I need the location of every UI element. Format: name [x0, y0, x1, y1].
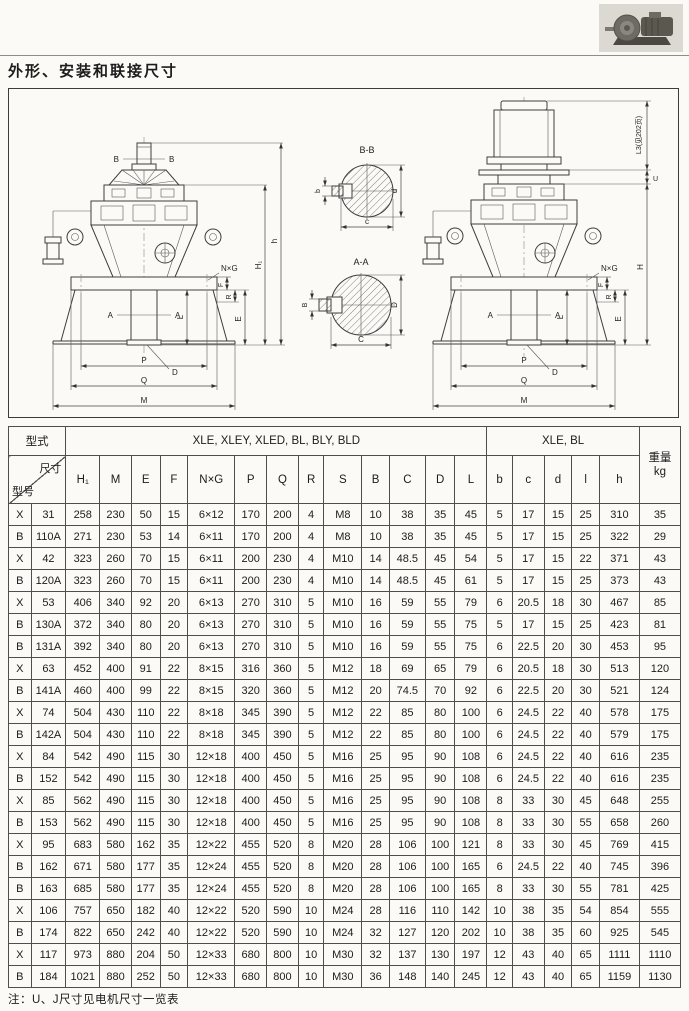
cell-value: 20 [544, 680, 572, 702]
cell-value: 371 [599, 548, 639, 570]
cell-series: X [9, 746, 32, 768]
cell-value: 22 [572, 548, 600, 570]
cell-value: 16 [362, 592, 390, 614]
cell-value: M10 [324, 636, 362, 658]
cell-value: 20 [160, 614, 188, 636]
weight-unit: kg [654, 466, 666, 478]
cell-value: 70 [425, 680, 455, 702]
cell-model: 153 [31, 812, 66, 834]
cell-value: 6×11 [188, 526, 235, 548]
table-row: B1636855801773512×244555208M202810610016… [9, 878, 681, 900]
cell-series: B [9, 570, 32, 592]
cell-value: 580 [100, 878, 132, 900]
column-header: C [389, 456, 425, 504]
table-row: B18410218802525012×3368080010M3036148140… [9, 966, 681, 988]
table-row: B141A46040099228×153203605M122074.570926… [9, 680, 681, 702]
cell-value: 400 [100, 680, 132, 702]
cell-value: 235 [639, 746, 680, 768]
cell-value: 460 [66, 680, 100, 702]
cell-value: 120 [639, 658, 680, 680]
cell-series: X [9, 944, 32, 966]
cell-model: 174 [31, 922, 66, 944]
cell-value: 55 [425, 614, 455, 636]
cell-value: 75 [455, 614, 487, 636]
cell-value: 230 [267, 570, 299, 592]
column-header: b [487, 456, 513, 504]
model-type-header: 型式 [9, 427, 66, 456]
dim-label-H: H [636, 264, 645, 270]
cell-value: 310 [267, 636, 299, 658]
cell-value: 12 [487, 966, 513, 988]
dim-label-D-section: D [390, 302, 399, 308]
dim-label-d: d [390, 189, 399, 193]
cell-model: 63 [31, 658, 66, 680]
column-header: L [455, 456, 487, 504]
cell-value: 5 [298, 790, 324, 812]
cell-value: 5 [487, 548, 513, 570]
cell-value: 800 [267, 966, 299, 988]
cell-value: 14 [160, 526, 188, 548]
cell-value: 85 [639, 592, 680, 614]
cell-value: 467 [599, 592, 639, 614]
cell-value: 680 [235, 966, 267, 988]
cell-value: 48.5 [389, 570, 425, 592]
cell-value: 25 [362, 746, 390, 768]
series-group2-header: XLE, BL [487, 427, 640, 456]
cell-value: 32 [362, 922, 390, 944]
cell-value: 520 [235, 900, 267, 922]
cell-value: 12×24 [188, 856, 235, 878]
cell-value: 25 [572, 570, 600, 592]
cell-value: 65 [572, 944, 600, 966]
cell-value: 430 [100, 702, 132, 724]
cell-value: 15 [544, 504, 572, 526]
corner-label-dimension: 尺寸 [39, 460, 61, 476]
cell-value: 200 [267, 504, 299, 526]
cell-value: 70 [131, 570, 160, 592]
cell-value: 28 [362, 834, 390, 856]
cell-value: 100 [425, 878, 455, 900]
cell-value: 200 [235, 548, 267, 570]
cell-value: 680 [235, 944, 267, 966]
cell-value: 95 [389, 768, 425, 790]
cell-value: 25 [572, 504, 600, 526]
cell-series: B [9, 966, 32, 988]
cell-value: M16 [324, 812, 362, 834]
cell-value: 124 [639, 680, 680, 702]
cell-value: 562 [66, 812, 100, 834]
cell-value: 40 [160, 900, 188, 922]
cell-model: 120A [31, 570, 66, 592]
cell-series: X [9, 702, 32, 724]
cell-value: 345 [235, 724, 267, 746]
cell-value: 100 [425, 834, 455, 856]
cell-value: 50 [160, 966, 188, 988]
cell-value: 8 [487, 812, 513, 834]
cell-value: 12×24 [188, 878, 235, 900]
table-row: X5340634092206×132703105M1016595579620.5… [9, 592, 681, 614]
cell-value: 430 [100, 724, 132, 746]
cell-series: X [9, 658, 32, 680]
cell-value: 40 [572, 746, 600, 768]
cell-value: 648 [599, 790, 639, 812]
cell-value: 5 [298, 746, 324, 768]
cell-value: 230 [100, 504, 132, 526]
section-cut-label-b: B [114, 155, 119, 164]
cell-value: 90 [425, 812, 455, 834]
series-group1-header: XLE, XLEY, XLED, BL, BLY, BLD [66, 427, 487, 456]
cell-value: M12 [324, 658, 362, 680]
cell-value: 10 [487, 900, 513, 922]
cell-value: 14 [362, 570, 390, 592]
cell-value: 683 [66, 834, 100, 856]
cell-value: 24.5 [512, 702, 544, 724]
cell-value: 177 [131, 878, 160, 900]
dim-label-P: P [141, 356, 146, 365]
cell-value: 17 [512, 504, 544, 526]
cell-value: 38 [512, 922, 544, 944]
cell-value: 406 [66, 592, 100, 614]
cell-value: M16 [324, 768, 362, 790]
cell-series: B [9, 812, 32, 834]
column-header: H₁ [66, 456, 100, 504]
cell-value: 22 [160, 658, 188, 680]
cell-value: 15 [544, 548, 572, 570]
cell-value: 5 [298, 724, 324, 746]
cell-value: 74.5 [389, 680, 425, 702]
cell-value: 12×33 [188, 966, 235, 988]
dim-label-P: P [521, 356, 526, 365]
table-row: B142A504430110228×183453905M122285801006… [9, 724, 681, 746]
cell-value: 33 [512, 812, 544, 834]
cell-value: 5 [298, 658, 324, 680]
cell-model: 184 [31, 966, 66, 988]
cell-value: 400 [235, 812, 267, 834]
cell-value: 5 [298, 636, 324, 658]
dim-label-E: E [614, 316, 623, 321]
cell-value: 1130 [639, 966, 680, 988]
cell-value: M24 [324, 900, 362, 922]
dim-label-M: M [521, 396, 528, 405]
cell-value: 5 [487, 526, 513, 548]
dim-label-D: D [552, 368, 558, 377]
cell-value: 29 [639, 526, 680, 548]
section-view-bb: B-B b d c [315, 145, 405, 231]
cell-value: 18 [544, 592, 572, 614]
cell-value: M8 [324, 504, 362, 526]
cell-model: 31 [31, 504, 66, 526]
cell-value: 22 [362, 702, 390, 724]
cell-value: 81 [639, 614, 680, 636]
cell-value: 116 [389, 900, 425, 922]
cell-value: 90 [425, 790, 455, 812]
cell-value: 22 [544, 746, 572, 768]
cell-value: 854 [599, 900, 639, 922]
cell-value: 17 [512, 614, 544, 636]
cell-value: 453 [599, 636, 639, 658]
cell-value: 106 [389, 878, 425, 900]
cell-value: 22.5 [512, 636, 544, 658]
cell-value: 80 [425, 724, 455, 746]
cell-value: 8 [487, 790, 513, 812]
cell-value: 80 [131, 614, 160, 636]
table-row: B131A39234080206×132703105M1016595575622… [9, 636, 681, 658]
cell-model: 95 [31, 834, 66, 856]
cell-value: 242 [131, 922, 160, 944]
corner-label-model: 型号 [12, 483, 34, 499]
section-cut-label-a: A [108, 311, 114, 320]
cell-value: 6×13 [188, 636, 235, 658]
cell-value: 12×22 [188, 834, 235, 856]
cell-value: M24 [324, 922, 362, 944]
cell-value: 18 [362, 658, 390, 680]
cell-value: 35 [160, 834, 188, 856]
dim-label-H1: H₁ [254, 260, 263, 269]
table-row: B1525424901153012×184004505M162595901086… [9, 768, 681, 790]
cell-value: 106 [389, 856, 425, 878]
cell-value: 20 [544, 636, 572, 658]
cell-value: 520 [267, 878, 299, 900]
cell-value: 271 [66, 526, 100, 548]
cell-value: 40 [160, 922, 188, 944]
dim-label-NxG: N×G [601, 264, 618, 273]
cell-value: 40 [544, 966, 572, 988]
cell-value: 400 [235, 790, 267, 812]
cell-value: 35 [544, 900, 572, 922]
cell-value: 880 [100, 944, 132, 966]
cell-value: 392 [66, 636, 100, 658]
cell-value: 880 [100, 966, 132, 988]
cell-value: 8×15 [188, 680, 235, 702]
cell-value: 55 [425, 592, 455, 614]
cell-value: 17 [512, 548, 544, 570]
cell-series: B [9, 768, 32, 790]
cell-value: 10 [487, 922, 513, 944]
table-row: B120A32326070156×112002304M101448.545615… [9, 570, 681, 592]
column-header: D [425, 456, 455, 504]
cell-value: 580 [100, 856, 132, 878]
cell-value: 33 [512, 878, 544, 900]
dim-label-h: h [270, 239, 279, 243]
cell-value: 340 [100, 614, 132, 636]
cell-value: 260 [639, 812, 680, 834]
cell-value: 33 [512, 790, 544, 812]
right-reducer-motor-view: A A L D N×G F R E [423, 97, 658, 410]
cell-value: 1111 [599, 944, 639, 966]
cell-value: 30 [544, 812, 572, 834]
cell-value: 230 [100, 526, 132, 548]
cell-value: 15 [544, 614, 572, 636]
cell-value: 24.5 [512, 768, 544, 790]
cell-value: 452 [66, 658, 100, 680]
cell-value: 110 [425, 900, 455, 922]
cell-value: 423 [599, 614, 639, 636]
cell-value: 616 [599, 746, 639, 768]
cell-value: 1159 [599, 966, 639, 988]
cell-value: 5 [298, 680, 324, 702]
dim-label-B: B [302, 302, 309, 307]
cell-value: 30 [544, 834, 572, 856]
dim-label-E: E [234, 316, 243, 321]
dim-label-Q: Q [521, 376, 527, 385]
cell-value: 95 [389, 790, 425, 812]
cell-value: 562 [66, 790, 100, 812]
cell-value: 28 [362, 856, 390, 878]
cell-value: 20 [362, 680, 390, 702]
cell-value: 12 [487, 944, 513, 966]
cell-value: 22 [362, 724, 390, 746]
cell-value: 137 [389, 944, 425, 966]
table-row: B130A37234080206×132703105M1016595575517… [9, 614, 681, 636]
cell-value: 45 [455, 526, 487, 548]
cell-value: 322 [599, 526, 639, 548]
cell-value: 6 [487, 592, 513, 614]
cell-value: 323 [66, 548, 100, 570]
cell-value: 90 [425, 768, 455, 790]
cell-value: 10 [362, 504, 390, 526]
cell-value: 542 [66, 746, 100, 768]
cell-value: 30 [160, 812, 188, 834]
column-header: S [324, 456, 362, 504]
cell-value: 6 [487, 680, 513, 702]
column-header: N×G [188, 456, 235, 504]
cell-value: 45 [572, 790, 600, 812]
cell-value: 6 [487, 856, 513, 878]
cell-value: 36 [362, 966, 390, 988]
cell-value: 30 [572, 658, 600, 680]
cell-value: 415 [639, 834, 680, 856]
cell-model: 130A [31, 614, 66, 636]
catalog-page: 外形、安装和联接尺寸 B B [0, 0, 689, 1011]
footnote: 注：U、J尺寸见电机尺寸一览表 [8, 991, 179, 1007]
cell-value: 4 [298, 548, 324, 570]
cell-value: M30 [324, 944, 362, 966]
cell-value: 10 [298, 944, 324, 966]
cell-value: 17 [512, 526, 544, 548]
cell-value: 252 [131, 966, 160, 988]
cell-value: 162 [131, 834, 160, 856]
cell-value: 106 [389, 834, 425, 856]
cell-value: 170 [235, 504, 267, 526]
cell-value: 115 [131, 790, 160, 812]
cell-value: 258 [66, 504, 100, 526]
cell-value: 520 [235, 922, 267, 944]
cell-value: 8×15 [188, 658, 235, 680]
cell-value: 822 [66, 922, 100, 944]
cell-value: 61 [455, 570, 487, 592]
cell-value: 43 [512, 944, 544, 966]
cell-value: 513 [599, 658, 639, 680]
cell-value: 542 [66, 768, 100, 790]
cell-value: 110 [131, 724, 160, 746]
cell-value: 230 [267, 548, 299, 570]
table-row: X3125823050156×121702004M810383545517152… [9, 504, 681, 526]
cell-value: 6×11 [188, 570, 235, 592]
cell-value: 95 [389, 812, 425, 834]
cell-value: 400 [100, 658, 132, 680]
dim-label-c: c [365, 217, 369, 226]
dim-label-L3: L3(见202页) [635, 116, 643, 154]
cell-series: X [9, 592, 32, 614]
cell-value: 12×33 [188, 944, 235, 966]
cell-value: 6×11 [188, 548, 235, 570]
cell-value: 5 [298, 702, 324, 724]
dim-label-L: L [176, 314, 185, 319]
dim-label-F: F [218, 283, 225, 287]
cell-value: 1021 [66, 966, 100, 988]
cell-value: M10 [324, 570, 362, 592]
cell-value: 450 [267, 790, 299, 812]
cell-value: 616 [599, 768, 639, 790]
cell-value: 390 [267, 724, 299, 746]
cell-value: 30 [544, 878, 572, 900]
table-row: X1179738802045012×3368080010M30321371301… [9, 944, 681, 966]
cell-value: 130 [425, 944, 455, 966]
cell-value: 54 [572, 900, 600, 922]
cell-value: 24.5 [512, 724, 544, 746]
cell-value: 25 [362, 768, 390, 790]
cell-value: 25 [572, 526, 600, 548]
cell-value: 40 [572, 724, 600, 746]
title-rule [0, 55, 689, 56]
cell-value: 6 [487, 768, 513, 790]
weight-label: 重量 [648, 452, 671, 464]
cell-value: 5 [298, 592, 324, 614]
column-header: l [572, 456, 600, 504]
cell-value: 30 [160, 790, 188, 812]
cell-value: 15 [160, 570, 188, 592]
cell-value: 65 [572, 966, 600, 988]
cell-value: 5 [487, 570, 513, 592]
cell-value: 521 [599, 680, 639, 702]
cell-value: 35 [425, 526, 455, 548]
cell-value: 8 [487, 834, 513, 856]
corner-cell: 尺寸 型号 [9, 456, 66, 504]
cell-value: 40 [572, 702, 600, 724]
cell-value: 310 [599, 504, 639, 526]
cell-value: 6 [487, 746, 513, 768]
section-title-aa: A-A [353, 257, 368, 267]
cell-value: 769 [599, 834, 639, 856]
cell-value: 490 [100, 790, 132, 812]
cell-value: 323 [66, 570, 100, 592]
cell-value: 6 [487, 702, 513, 724]
cell-value: 25 [362, 790, 390, 812]
cell-value: 45 [425, 548, 455, 570]
cell-value: 390 [267, 702, 299, 724]
cell-value: 270 [235, 614, 267, 636]
cell-value: 100 [425, 856, 455, 878]
cell-value: 12×18 [188, 812, 235, 834]
cell-value: 5 [487, 614, 513, 636]
cell-value: 60 [572, 922, 600, 944]
cell-value: M20 [324, 878, 362, 900]
cell-value: 490 [100, 812, 132, 834]
cell-value: 175 [639, 724, 680, 746]
cell-value: 75 [455, 636, 487, 658]
cell-model: 141A [31, 680, 66, 702]
dim-label-R: R [226, 294, 233, 299]
cell-value: 580 [100, 834, 132, 856]
cell-series: X [9, 790, 32, 812]
cell-value: 25 [362, 812, 390, 834]
cell-value: 53 [131, 526, 160, 548]
cell-value: M30 [324, 966, 362, 988]
cell-value: 108 [455, 768, 487, 790]
cell-value: 30 [572, 680, 600, 702]
cell-value: 10 [362, 526, 390, 548]
cell-value: 590 [267, 922, 299, 944]
